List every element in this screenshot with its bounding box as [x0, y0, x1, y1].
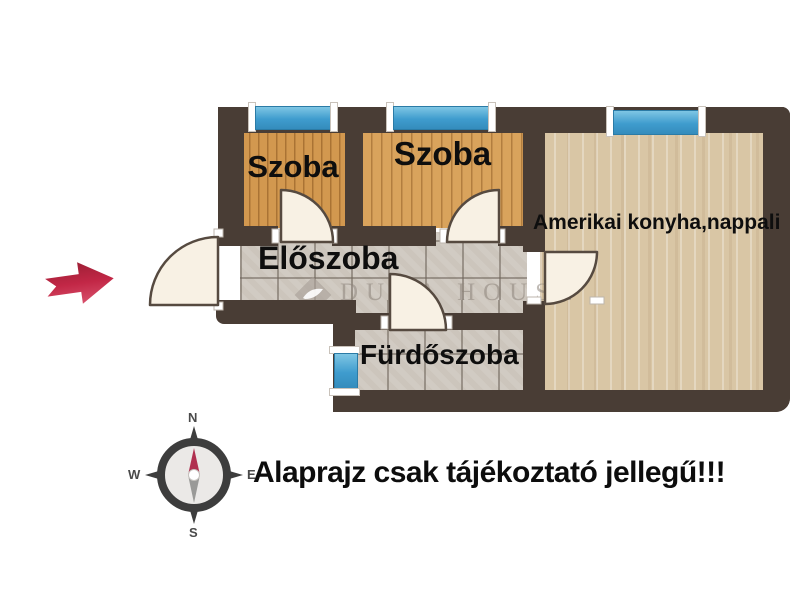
szoba1-door-icon [281, 190, 333, 242]
door-jamb-icon [590, 297, 604, 304]
room-label-living: Amerikai konyha,nappali [533, 211, 780, 235]
door-jamb-icon [527, 297, 541, 304]
compass-hub-icon [189, 470, 200, 481]
compass-icon: N W E S [128, 410, 258, 540]
door-layer [0, 0, 800, 600]
room-label-eloszoba: Előszoba [258, 240, 398, 277]
compass-rose-icon [128, 410, 258, 540]
entrance-door-icon [150, 237, 218, 305]
compass-label-w: W [128, 467, 140, 482]
compass-label-n: N [188, 410, 197, 425]
bathroom-door-icon [390, 274, 446, 330]
szoba2-door-icon [447, 190, 499, 242]
disclaimer-text: Alaprajz csak tájékoztató jellegű!!! [253, 456, 725, 490]
door-jamb-icon [381, 316, 388, 329]
room-label-szoba1: Szoba [238, 149, 348, 185]
floor-plan-page: DUNA HOUSE [0, 0, 800, 600]
living-door-icon [545, 252, 597, 304]
entrance-arrow-icon [44, 258, 118, 308]
room-label-szoba2: Szoba [360, 135, 525, 173]
room-label-bathroom: Fürdőszoba [360, 339, 519, 371]
compass-label-s: S [189, 525, 198, 540]
